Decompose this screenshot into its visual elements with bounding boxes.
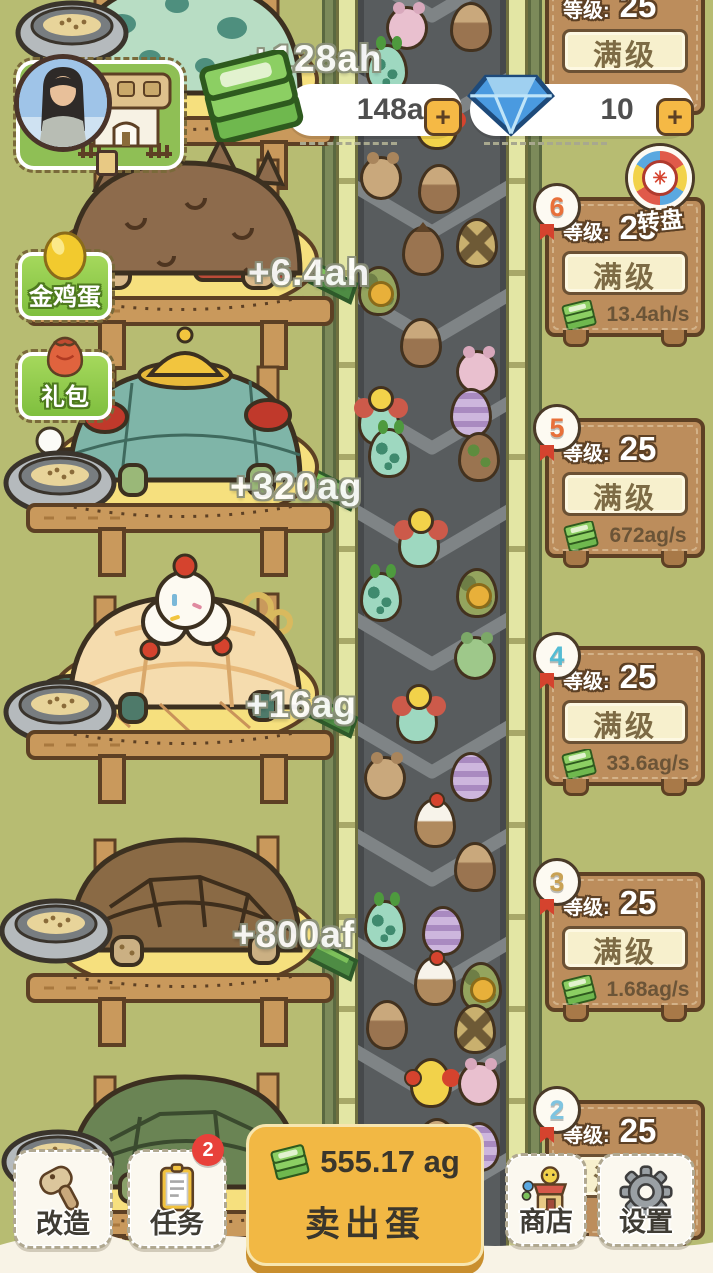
avatar[interactable] bbox=[14, 54, 112, 152]
income-rate: 672ag/s bbox=[609, 524, 686, 548]
egg-mouse-brown bbox=[360, 156, 402, 200]
shop-label: 商店 bbox=[509, 1200, 583, 1239]
level-row: 等级: 25 bbox=[563, 1112, 701, 1150]
egg-gold-bow bbox=[410, 1058, 452, 1108]
upgrade-panel: 4 等级: 25 满级 33.6ag/s bbox=[545, 646, 705, 786]
egg-yellow-x bbox=[456, 218, 498, 268]
panel-number: 4 bbox=[549, 641, 564, 672]
turtle-cake[interactable] bbox=[0, 542, 380, 804]
egg-purple-stripe bbox=[450, 388, 492, 438]
panel-foot bbox=[563, 779, 589, 796]
egg-brown-hatch bbox=[450, 2, 492, 52]
panel-foot bbox=[563, 330, 589, 347]
panel-number-badge: 2 bbox=[533, 1086, 581, 1134]
panel-number: 5 bbox=[549, 413, 564, 444]
panel-foot bbox=[661, 1005, 687, 1022]
egg-teal-spot bbox=[364, 900, 406, 950]
food-bowl bbox=[12, 0, 132, 62]
max-level-button[interactable]: 满级 bbox=[562, 29, 688, 73]
wheel-hub-icon: ✳ bbox=[642, 160, 678, 196]
panel-foot bbox=[563, 551, 589, 568]
egg-mouse-pink bbox=[458, 1062, 500, 1106]
gift-pouch-icon bbox=[38, 326, 92, 382]
egg-purple-stripe bbox=[450, 752, 492, 802]
egg-brown-hatch bbox=[418, 164, 460, 214]
max-level-button[interactable]: 满级 bbox=[562, 926, 688, 970]
money-bills-icon bbox=[198, 50, 310, 142]
max-level-button[interactable]: 满级 bbox=[562, 700, 688, 744]
money-bills-icon bbox=[561, 749, 599, 779]
floating-gain-text: +800af bbox=[233, 914, 355, 956]
panel-number: 2 bbox=[549, 1095, 564, 1126]
level-row: 等级: 25 bbox=[563, 0, 701, 25]
floating-gain-text: +320ag bbox=[230, 466, 363, 508]
panel-number-badge: 6 bbox=[533, 183, 581, 231]
sell-eggs-button[interactable]: 555.17 ag 卖出蛋 bbox=[246, 1124, 484, 1266]
panel-number-badge: 4 bbox=[533, 632, 581, 680]
turtle-bed-4[interactable] bbox=[0, 542, 380, 804]
egg-brown-hatch bbox=[400, 318, 442, 368]
egg-brown-spike bbox=[402, 226, 444, 276]
egg-mouse-green bbox=[454, 636, 496, 680]
max-level-button[interactable]: 满级 bbox=[562, 251, 688, 295]
egg-mouse-pink bbox=[456, 350, 498, 394]
tasks-badge: 2 bbox=[192, 1134, 224, 1166]
rate-row: 672ag/s bbox=[549, 521, 701, 551]
golden-egg-label: 金鸡蛋 bbox=[22, 277, 108, 312]
panel-number-badge: 5 bbox=[533, 404, 581, 452]
renovate-label: 改造 bbox=[17, 1202, 109, 1241]
egg-brown-hatch bbox=[454, 842, 496, 892]
egg-chick bbox=[398, 518, 440, 568]
level-row: 等级: 25 bbox=[563, 430, 701, 468]
egg-teal-spot bbox=[360, 572, 402, 622]
max-level-button[interactable]: 满级 bbox=[562, 472, 688, 516]
money-bills-icon bbox=[563, 521, 601, 551]
level-value: 25 bbox=[620, 0, 657, 25]
level-row: 等级: 25 bbox=[563, 884, 701, 922]
add-money-button[interactable]: + bbox=[424, 98, 462, 136]
level-value: 25 bbox=[620, 430, 657, 468]
floating-gain-text: +16ag bbox=[246, 684, 357, 726]
settings-button[interactable]: 设置 bbox=[598, 1154, 694, 1246]
tasks-label: 任务 bbox=[131, 1202, 223, 1241]
ribbon-icon bbox=[540, 224, 554, 240]
panel-number: 6 bbox=[549, 192, 564, 223]
ribbon-icon bbox=[540, 899, 554, 915]
level-row: 等级: 25 bbox=[563, 658, 701, 696]
belt-right-pole bbox=[506, 0, 528, 1273]
income-rate: 13.4ah/s bbox=[607, 303, 690, 327]
panel-foot bbox=[661, 551, 687, 568]
panel-foot bbox=[661, 779, 687, 796]
egg-mouse-pink bbox=[386, 6, 428, 50]
game-screen: +128ah+6.4ah+320ag+16ag+800af 等级: 25 满级 … bbox=[0, 0, 713, 1273]
add-gems-button[interactable]: + bbox=[656, 98, 694, 136]
egg-brown-hatch bbox=[366, 1000, 408, 1050]
gift-pack-label: 礼包 bbox=[22, 377, 108, 412]
avatar-photo bbox=[19, 59, 107, 147]
shop-button[interactable]: 商店 bbox=[506, 1154, 586, 1246]
golden-egg-icon bbox=[42, 226, 88, 280]
egg-purple-stripe bbox=[422, 906, 464, 956]
golden-egg-button[interactable]: 金鸡蛋 bbox=[18, 252, 112, 320]
panel-foot bbox=[661, 330, 687, 347]
belt-eggs bbox=[358, 0, 506, 1273]
diamond-icon bbox=[464, 58, 558, 140]
egg-yellow-x bbox=[454, 1004, 496, 1054]
egg-camo-coin bbox=[456, 568, 498, 618]
settings-label: 设置 bbox=[601, 1200, 691, 1239]
renovate-button[interactable]: 改造 bbox=[14, 1150, 112, 1248]
egg-teal-spot bbox=[368, 428, 410, 478]
ribbon-icon bbox=[540, 1127, 554, 1143]
level-value: 25 bbox=[620, 1112, 657, 1150]
fence-icon bbox=[144, 142, 174, 160]
ribbon-icon bbox=[540, 445, 554, 461]
income-rate: 33.6ag/s bbox=[607, 752, 690, 776]
panel-foot bbox=[563, 1005, 589, 1022]
sell-amount: 555.17 ag bbox=[320, 1144, 460, 1180]
egg-chick bbox=[396, 694, 438, 744]
rate-row: 1.68ag/s bbox=[549, 975, 701, 1005]
money-bills-icon bbox=[561, 975, 599, 1005]
level-label: 等级: bbox=[563, 0, 610, 23]
rate-row: 13.4ah/s bbox=[549, 300, 701, 330]
upgrade-panel: 5 等级: 25 满级 672ag/s bbox=[545, 418, 705, 558]
money-bills-icon bbox=[270, 1143, 312, 1181]
sell-eggs-label: 卖出蛋 bbox=[249, 1196, 481, 1247]
income-rate: 1.68ag/s bbox=[607, 978, 690, 1002]
egg-brown-leaf bbox=[458, 432, 500, 482]
egg-cake bbox=[414, 798, 456, 848]
ribbon-icon bbox=[540, 673, 554, 689]
level-value: 25 bbox=[620, 658, 657, 696]
money-bills-icon bbox=[561, 300, 599, 330]
egg-mouse-brown bbox=[364, 756, 406, 800]
floating-gain-text: +6.4ah bbox=[248, 252, 370, 294]
gift-pack-button[interactable]: 礼包 bbox=[18, 352, 112, 420]
panel-number-badge: 3 bbox=[533, 858, 581, 906]
panel-number: 3 bbox=[549, 867, 564, 898]
level-value: 25 bbox=[620, 884, 657, 922]
egg-cake bbox=[414, 956, 456, 1006]
rate-row: 33.6ag/s bbox=[549, 749, 701, 779]
upgrade-panel: 3 等级: 25 满级 1.68ag/s bbox=[545, 872, 705, 1012]
avatar-tag bbox=[96, 150, 118, 176]
